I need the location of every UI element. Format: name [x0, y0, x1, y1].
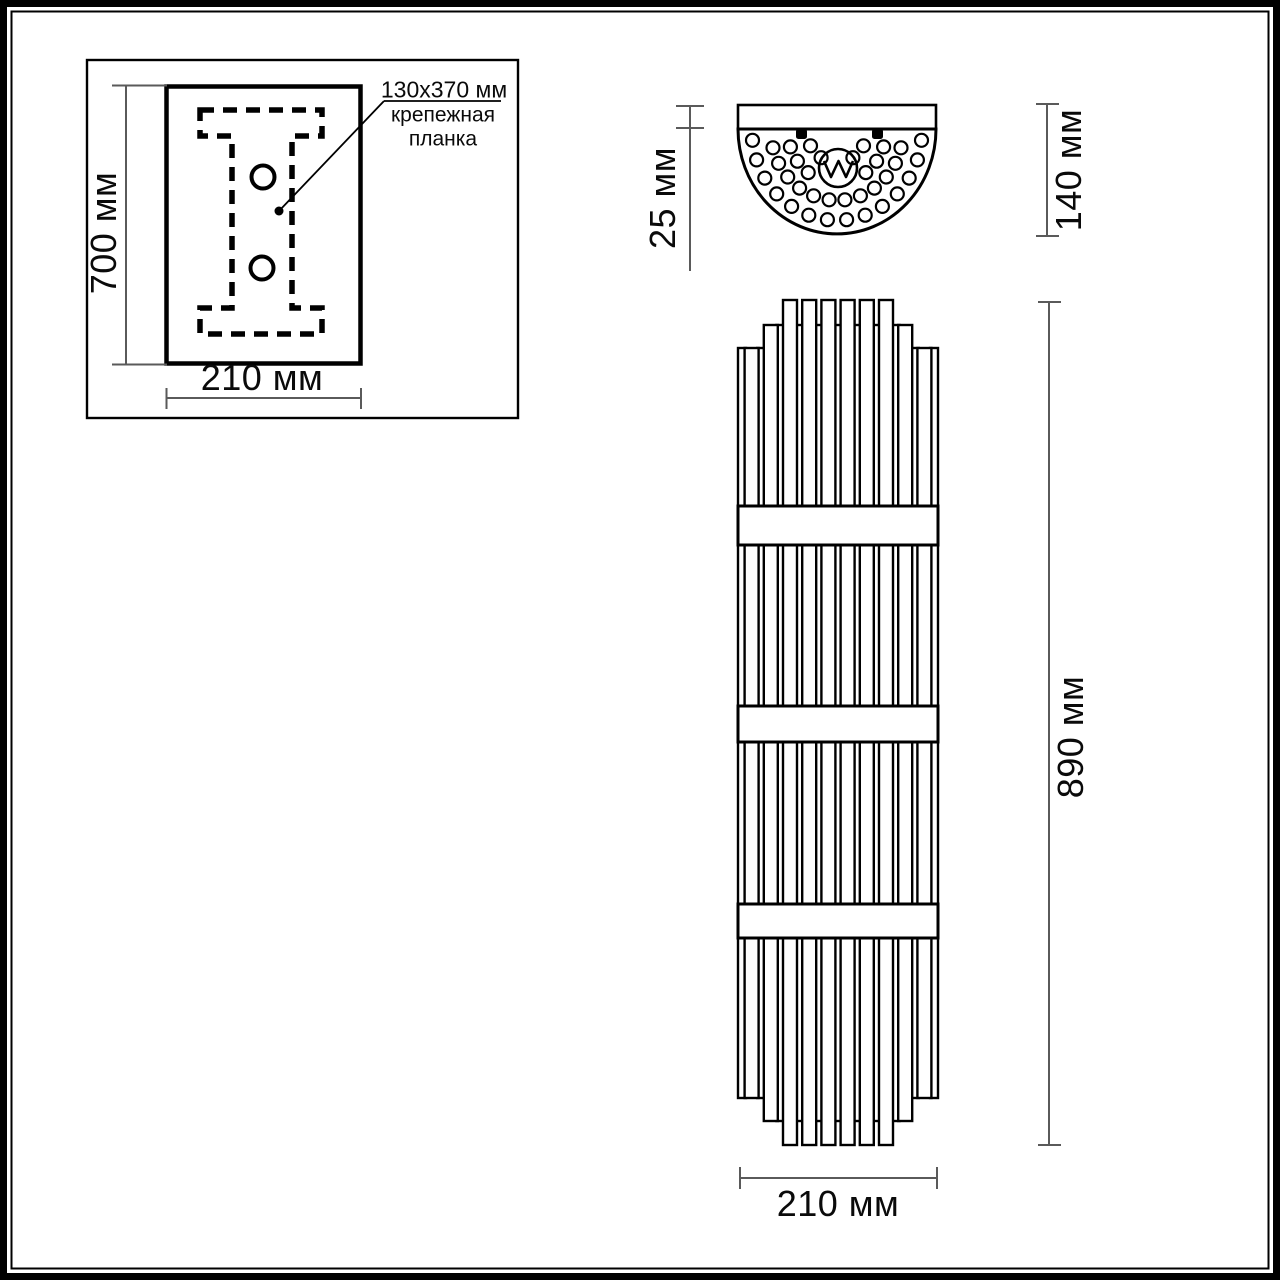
rod-end-dot: [793, 182, 806, 195]
rod-end-dot: [804, 139, 817, 152]
rod-end-dot: [750, 153, 763, 166]
rod-end-dot: [791, 155, 804, 168]
rod-end-dot: [784, 140, 797, 153]
metal-ring: [738, 506, 938, 545]
rod-end-dot: [781, 171, 794, 184]
front-height-label: 890 мм: [1050, 676, 1092, 799]
rod-end-dot: [880, 171, 893, 184]
rod-end-dot: [859, 209, 872, 222]
rod-end-dot: [821, 213, 834, 226]
depth-label: 140 мм: [1048, 109, 1090, 232]
front-view: [738, 300, 938, 1145]
rod-end-dot: [870, 155, 883, 168]
rod-end-dot: [915, 134, 928, 147]
screw-tab-left: [796, 129, 807, 139]
rod-end-dot: [785, 200, 798, 213]
plate-thickness-label: 25 мм: [642, 147, 684, 249]
rod-end-dot: [838, 193, 851, 206]
technical-drawing-canvas: 130x370 мм крепежная планка 700 мм 210 м…: [0, 0, 1280, 1280]
glass-rod-ends: [746, 134, 928, 226]
mounting-hole-top: [252, 166, 275, 189]
rod-end-dot: [767, 141, 780, 154]
rod-end-dot: [823, 193, 836, 206]
rod-end-dot: [807, 189, 820, 202]
rod-end-dot: [889, 157, 902, 170]
rod-end-dot: [802, 166, 815, 179]
mounting-hole-bottom: [251, 257, 274, 280]
rod-end-dot: [746, 134, 759, 147]
inset-height-label: 700 мм: [83, 172, 125, 295]
metal-ring: [738, 904, 938, 938]
rod-end-dot: [772, 157, 785, 170]
rod-end-dot: [840, 213, 853, 226]
rod-end-dot: [877, 140, 890, 153]
wall-bracket-plate: [738, 105, 936, 129]
rod-end-dot: [857, 139, 870, 152]
front-width-label: 210 мм: [777, 1183, 900, 1225]
rod-end-dot: [891, 187, 904, 200]
metal-ring: [738, 706, 938, 742]
mounting-bar-size-label: 130x370 мм: [381, 77, 507, 104]
rod-end-dot: [854, 189, 867, 202]
mounting-bar-dashed-outline: [200, 110, 322, 334]
rod-end-dot: [903, 172, 916, 185]
rod-end-dot: [758, 172, 771, 185]
top-view: [738, 105, 936, 234]
mounting-bar-name-label: крепежная планка: [391, 103, 495, 150]
rod-end-dot: [895, 141, 908, 154]
rod-end-dot: [802, 209, 815, 222]
rod-end-dot: [911, 153, 924, 166]
screw-tab-right: [872, 129, 883, 139]
wall-plate-outline: [167, 87, 361, 364]
rod-end-dot: [859, 166, 872, 179]
inset-width-label: 210 мм: [201, 357, 324, 399]
rod-end-dot: [868, 182, 881, 195]
rod-end-dot: [876, 200, 889, 213]
rod-end-dot: [770, 187, 783, 200]
